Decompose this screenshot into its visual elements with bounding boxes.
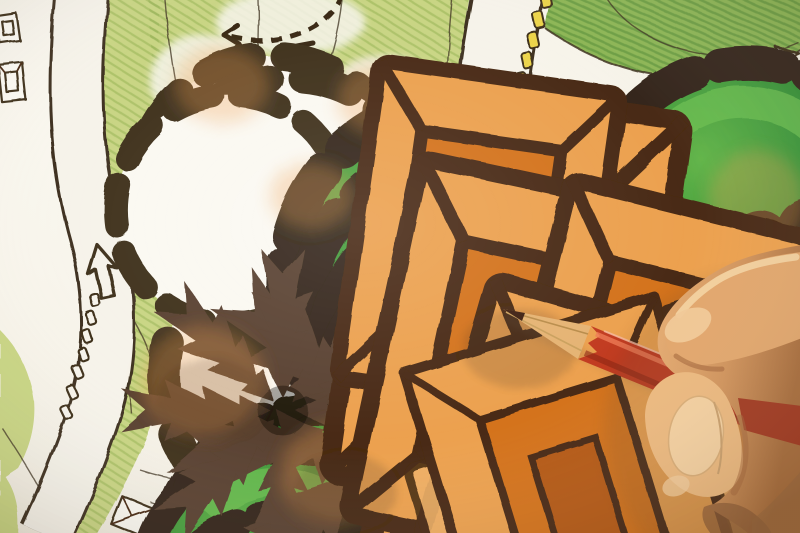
site-plan-photo — [0, 0, 800, 533]
photo-vignette — [0, 0, 800, 533]
site-plan-canvas — [0, 0, 800, 533]
